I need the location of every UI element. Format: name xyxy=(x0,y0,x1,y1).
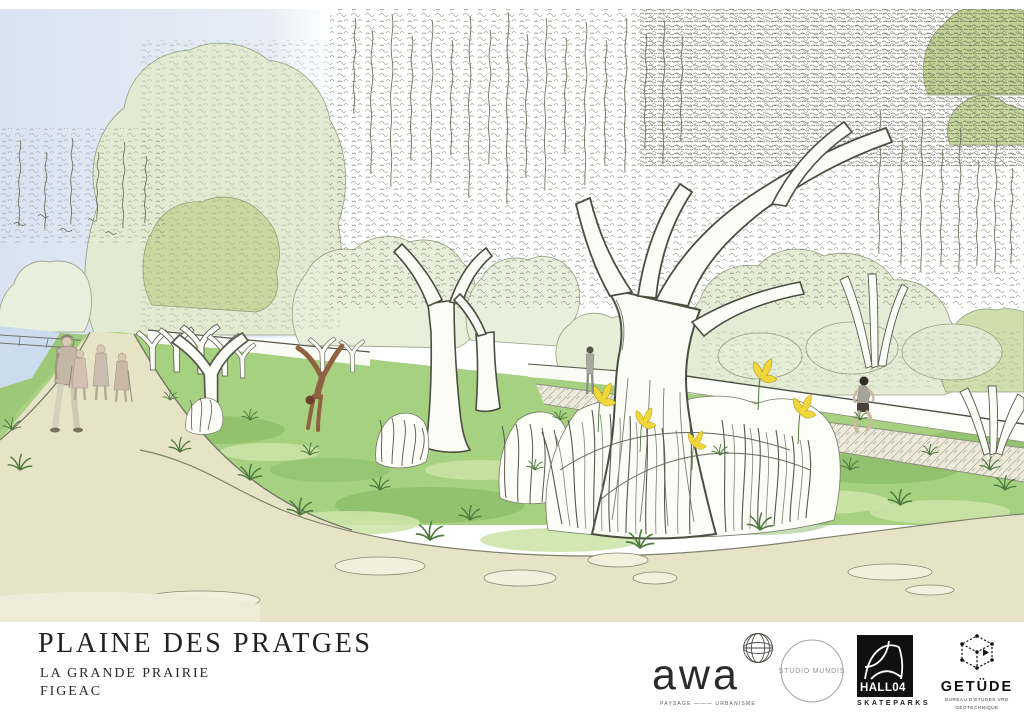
project-subtitle: LA GRANDE PRAIRIE xyxy=(40,666,373,682)
hall04-label: SKATEPARKS xyxy=(857,700,915,707)
circle-outline-icon: STUDIO MUNDIS xyxy=(779,638,845,704)
logo-studio-mundis: STUDIO MUNDIS xyxy=(779,638,845,704)
logo-hall04: HALL04 SKATEPARKS xyxy=(857,635,915,707)
getude-wordmark: GETÜDE xyxy=(933,679,1021,695)
getude-descriptor-line2: GÉOTECHNIQUE xyxy=(933,705,1021,711)
logo-awa: awa PAYSAGE ——— URBANISME xyxy=(652,630,778,707)
logo-getude: GETÜDE BUREAU D'ÉTUDES VRD GÉOTECHNIQUE xyxy=(933,632,1021,712)
board-footer: PLAINE DES PRATGES LA GRANDE PRAIRIE FIG… xyxy=(0,622,1024,724)
title-block: PLAINE DES PRATGES LA GRANDE PRAIRIE FIG… xyxy=(38,628,373,700)
park-perspective-illustration xyxy=(0,0,1024,622)
page-title: PLAINE DES PRATGES xyxy=(38,628,373,660)
awa-tagline: PAYSAGE ——— URBANISME xyxy=(652,701,764,707)
project-location: FIGEAC xyxy=(40,684,373,700)
presentation-board: PLAINE DES PRATGES LA GRANDE PRAIRIE FIG… xyxy=(0,0,1024,724)
globe-icon xyxy=(742,632,774,664)
getude-descriptor-line1: BUREAU D'ÉTUDES VRD xyxy=(933,697,1021,703)
studio-mundis-label: STUDIO MUNDIS xyxy=(779,668,845,675)
hall04-wordmark: HALL04 xyxy=(860,682,906,694)
top-margin xyxy=(0,0,1024,9)
wireframe-cube-icon xyxy=(956,632,998,672)
